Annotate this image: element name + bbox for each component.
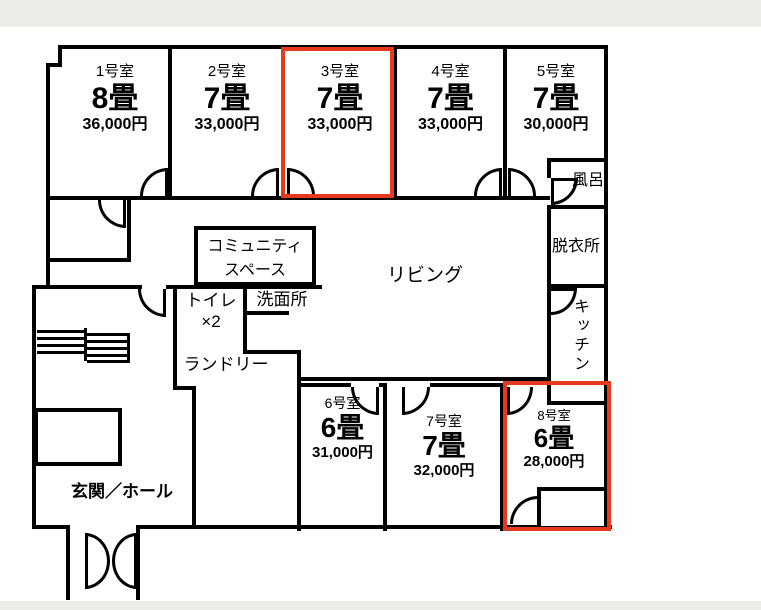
wall [430,383,504,387]
wall [173,289,177,390]
room-5-door-icon [508,168,536,196]
floor-plan: コミュニティ スペース 1号室 8畳 36,000円 2号室 7畳 33,000… [0,0,761,610]
room-size: 6畳 [301,412,384,443]
room-size: 8畳 [61,82,169,115]
room-4-label: 4号室 7畳 33,000円 [397,62,504,135]
room-1-door-icon [140,168,168,196]
room-5-label: 5号室 7畳 30,000円 [507,62,605,135]
wall [547,158,608,162]
dressing-room-label: 脱衣所 [547,236,605,257]
entrance-door-right-icon [112,533,137,589]
room-size: 6畳 [504,424,604,453]
room-7-door-icon [402,387,430,415]
wall [127,196,131,262]
room-2-door-icon [251,168,279,196]
room-size: 7畳 [172,82,282,115]
room-price: 30,000円 [507,115,605,135]
room-number: 5号室 [507,62,605,82]
top-margin-strip [0,0,761,27]
room-3-label: 3号室 7畳 33,000円 [286,62,394,135]
wall [46,63,50,289]
room-number: 2号室 [172,62,282,82]
room-4-door-icon [474,168,502,196]
hall-door-icon [138,289,166,317]
room-price: 28,000円 [504,453,604,471]
wall [46,258,131,262]
room-price: 33,000円 [172,115,282,135]
living-label: リビング [378,265,472,286]
room-size: 7畳 [397,82,504,115]
community-space-label: コミュニティ スペース [198,235,312,283]
laundry-label: ランドリー [181,354,271,375]
wall [192,386,196,529]
entrance-door-left-icon [85,533,110,589]
wall [66,525,70,600]
bath-label: 風呂 [562,170,604,191]
room-1-label: 1号室 8畳 36,000円 [61,62,169,135]
room-price: 36,000円 [61,115,169,135]
room-number: 6号室 [301,394,384,412]
kitchen-label: キッチン [569,298,590,406]
bottom-margin-strip [0,601,761,610]
room-7-label: 7号室 7畳 32,000円 [387,412,501,480]
wall [243,311,289,315]
wall [32,525,70,529]
wall [547,205,608,209]
room-number: 1号室 [61,62,169,82]
room-8-label: 8号室 6畳 28,000円 [504,407,604,471]
room-number: 4号室 [397,62,504,82]
room-number: 7号室 [387,412,501,430]
wall [32,285,142,289]
room-size: 7畳 [286,82,394,115]
washroom-label: 洗面所 [244,289,320,310]
entrance-label: 玄関／ホール [66,481,178,502]
room-2-label: 2号室 7畳 33,000円 [172,62,282,135]
room-price: 31,000円 [301,443,384,462]
staircase [35,328,131,364]
wall [297,383,351,387]
room-size: 7畳 [387,430,501,461]
room-number: 3号室 [286,62,394,82]
room-price: 32,000円 [387,461,501,480]
room-price: 33,000円 [286,115,394,135]
wall [32,285,36,529]
room-size: 7畳 [507,82,605,115]
community-space-box: コミュニティ スペース [194,226,316,286]
storage-room-door-icon [98,200,126,228]
toilet-label: トイレ ×2 [178,290,244,332]
room-number: 8号室 [504,407,604,424]
entrance-cabinet [34,408,122,466]
wall [547,158,551,178]
room-6-label: 6号室 6畳 31,000円 [301,394,384,462]
room-price: 33,000円 [397,115,504,135]
